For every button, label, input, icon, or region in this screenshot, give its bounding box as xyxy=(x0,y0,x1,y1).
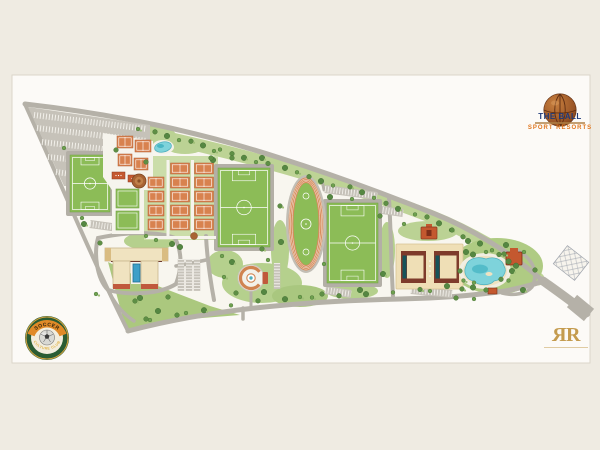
architect-monogram: RR xyxy=(540,325,592,350)
kiosk xyxy=(191,233,198,240)
club-badge: SOCCER CULTURE CLUB xyxy=(24,315,70,361)
master-plan-drawing xyxy=(0,0,600,450)
monogram-left: R xyxy=(555,325,566,345)
centre-court-bowl xyxy=(132,174,146,188)
site-plan-poster: THE BALL SPORT RESORTS SOCCER CULTURE CL… xyxy=(0,0,600,450)
tagline-line xyxy=(535,122,585,124)
fine-print-line xyxy=(544,347,588,348)
brand-title: THE BALL xyxy=(521,112,599,121)
soccer-ball-icon xyxy=(40,330,55,345)
courtyard-pool xyxy=(133,264,140,282)
athletics-track xyxy=(286,175,326,273)
monogram-right: R xyxy=(566,324,577,346)
brand-logo: THE BALL SPORT RESORTS xyxy=(521,92,599,131)
brand-subtitle: SPORT RESORTS xyxy=(521,125,599,131)
leisure-pool-north xyxy=(152,140,174,154)
